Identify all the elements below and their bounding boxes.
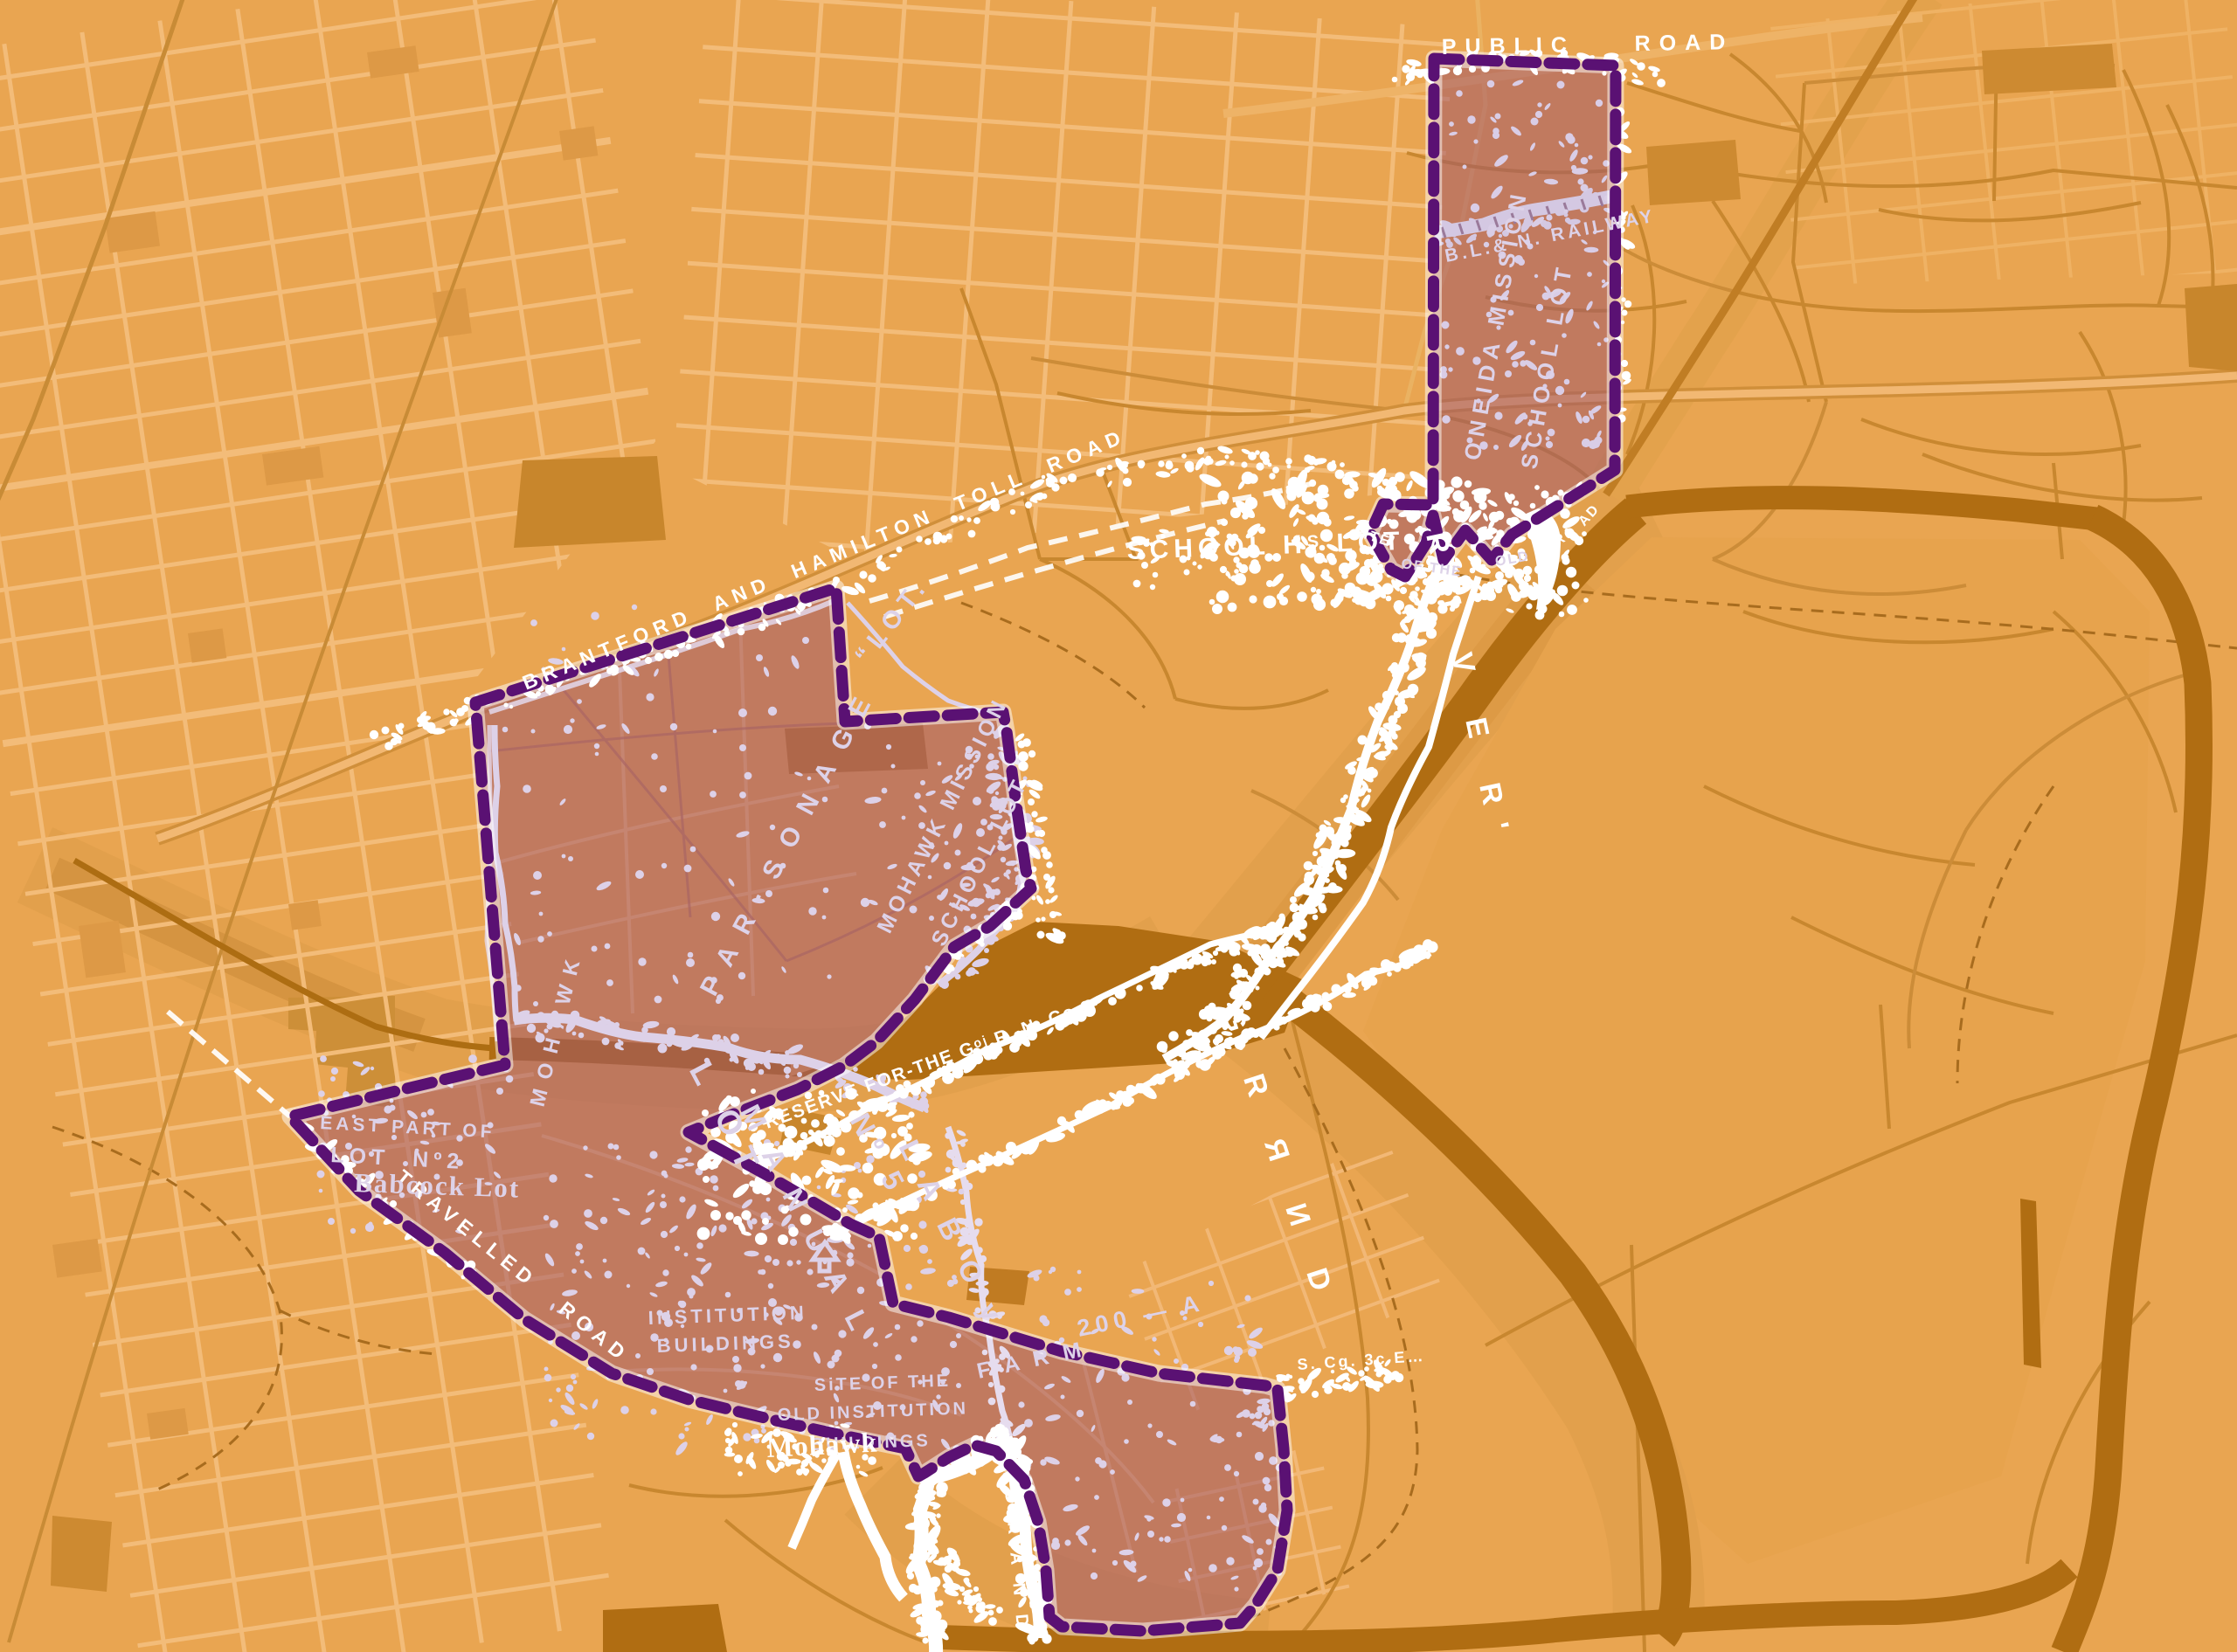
svg-text:Babcock Lot: Babcock Lot <box>354 1167 521 1204</box>
svg-text:Mohawk: Mohawk <box>765 1426 878 1463</box>
svg-text:PUBLIC ROAD: PUBLIC ROAD <box>1442 30 1735 59</box>
